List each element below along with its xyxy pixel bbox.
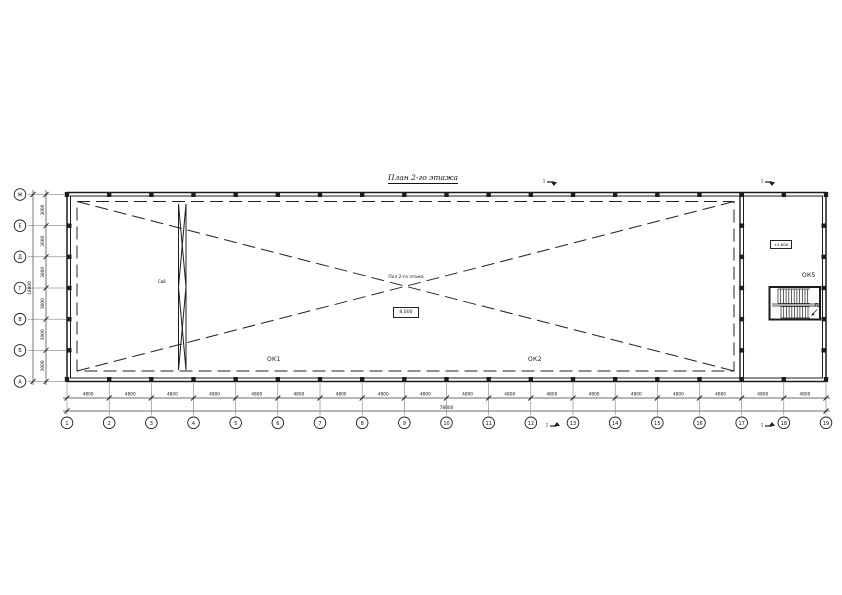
axis-letter: Ж: [17, 192, 23, 198]
axis-letter: Д: [18, 255, 22, 261]
bay-dimension: 4800: [336, 392, 347, 398]
bay-dimension: 4800: [757, 392, 768, 398]
section-marker-label: 1: [761, 423, 764, 428]
axis-number: 7: [318, 421, 321, 427]
axis-number: 13: [570, 421, 576, 427]
axis-letter: В: [18, 317, 21, 323]
window-label-ok1: ОК1: [267, 356, 281, 363]
bay-dimension: 4800: [83, 392, 94, 398]
bay-dimension: 4800: [546, 392, 557, 398]
axis-letter: Б: [18, 348, 21, 354]
bay-dimension: 4800: [589, 392, 600, 398]
column-ticks: [65, 192, 828, 382]
stair-elevation-mark: +4.800: [770, 240, 792, 249]
axis-number: 4: [192, 421, 195, 427]
axis-number: 3: [150, 421, 153, 427]
bay-dimension: 4800: [715, 392, 726, 398]
axis-number: 15: [654, 421, 660, 427]
bottom-axis-grid: 1234567891011121314151617181948004800480…: [61, 383, 832, 429]
floor-opening-dashed: [77, 202, 734, 372]
bracing-label: Св8: [158, 279, 166, 284]
row-dimension: 3000: [40, 360, 46, 371]
axis-number: 17: [738, 421, 744, 427]
floor-plan-drawing: 1234567891011121314151617181948004800480…: [0, 0, 842, 595]
bay-dimension: 4800: [673, 392, 684, 398]
axis-number: 12: [528, 421, 534, 427]
axis-number: 18: [781, 421, 787, 427]
axis-number: 2: [108, 421, 111, 427]
section-marker-label: 1: [543, 179, 546, 184]
stair-label: Л2: [814, 303, 822, 309]
axis-number: 8: [361, 421, 364, 427]
left-axis-grid: АБВГДЕЖ30003000300030003000300018000: [14, 189, 66, 388]
bay-dimension: 4800: [378, 392, 389, 398]
page-title: План 2-го этажа: [388, 173, 458, 184]
axis-number: 9: [403, 421, 406, 427]
section-marker-flag-icon: [769, 182, 775, 186]
axis-number: 11: [485, 421, 491, 427]
axis-letter: Г: [19, 286, 22, 292]
section-marker-flag-icon: [769, 422, 775, 426]
bay-dimension: 4800: [125, 392, 136, 398]
bay-dimension: 4800: [420, 392, 431, 398]
window-label-ok5: ОК5: [802, 272, 816, 279]
bay-dimension: 4800: [504, 392, 515, 398]
row-dimension: 3000: [40, 236, 46, 247]
axis-number: 5: [234, 421, 237, 427]
bay-dimension: 4800: [799, 392, 810, 398]
axis-number: 16: [696, 421, 702, 427]
bay-dimension: 4800: [209, 392, 220, 398]
row-dimension: 3000: [40, 267, 46, 278]
axis-number: 19: [823, 421, 829, 427]
window-label-ok2: ОК2: [528, 356, 542, 363]
axis-number: 6: [276, 421, 279, 427]
section-marker-label: 1: [546, 423, 549, 428]
row-dimension: 3000: [40, 204, 46, 215]
section-marker-flag-icon: [554, 422, 560, 426]
row-dimension: 3000: [40, 298, 46, 309]
axis-number: 14: [612, 421, 618, 427]
bay-dimension: 4800: [293, 392, 304, 398]
section-marker-flag-icon: [551, 182, 557, 186]
bay-dimension: 4800: [251, 392, 262, 398]
bay-dimension: 4800: [462, 392, 473, 398]
bay-dimension: 4800: [167, 392, 178, 398]
center-elevation-mark: 8.000: [393, 307, 419, 318]
total-dimension-bottom: 78000: [440, 405, 454, 411]
stair-leader-arrow-icon: [812, 313, 815, 316]
row-dimension: 3000: [40, 329, 46, 340]
axis-number: 1: [65, 421, 68, 427]
vertical-bracing: [179, 204, 187, 370]
section-marker-label: 1: [761, 179, 764, 184]
drawing-canvas: 1234567891011121314151617181948004800480…: [0, 0, 842, 595]
total-dimension-left: 18000: [27, 281, 33, 295]
building-walls: [67, 193, 826, 382]
staircase: [770, 287, 821, 320]
axis-letter: Е: [18, 224, 21, 230]
center-note: Пол 2-го этажа: [366, 275, 446, 280]
drawing-title-wrap: План 2-го этажа: [373, 165, 473, 184]
bay-dimension: 4800: [631, 392, 642, 398]
axis-number: 10: [443, 421, 449, 427]
